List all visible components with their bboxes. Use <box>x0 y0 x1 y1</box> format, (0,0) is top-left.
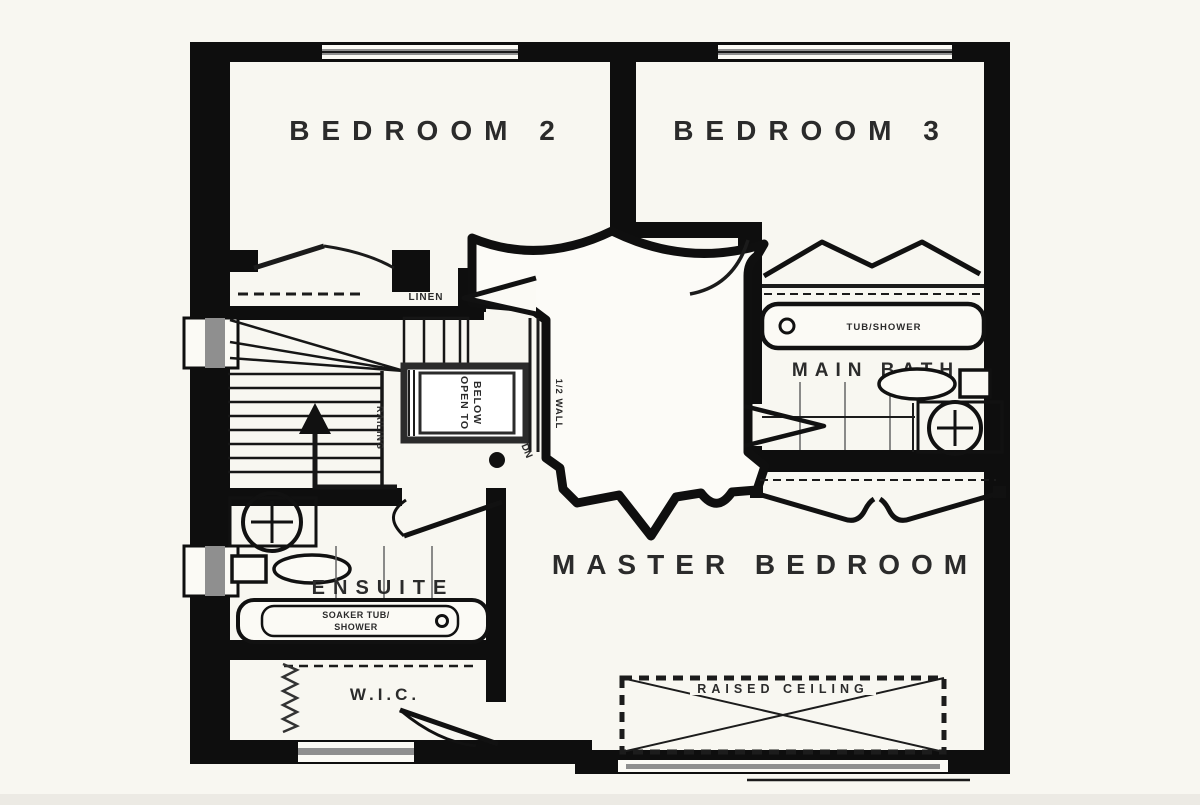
linen-label: LINEN <box>409 292 444 303</box>
open-to-below: OPEN TO BELOW <box>404 366 526 440</box>
floor-plan-drawing: OPEN TO BELOW 1/2 WALL DN LINEN TUB/SHOW… <box>0 0 1200 805</box>
soaker-tub-label-line1: SOAKER TUB/ <box>322 610 390 620</box>
footer-strip <box>0 794 1200 805</box>
bedroom2-label: BEDROOM 2 <box>289 115 567 146</box>
wall-left <box>190 42 230 762</box>
open-to-below-label-line2: BELOW <box>471 381 483 425</box>
ensuite-label: ENSUITE <box>312 577 455 599</box>
bedroom3-label: BEDROOM 3 <box>673 115 951 146</box>
door-pivot <box>750 486 763 498</box>
soaker-tub: SOAKER TUB/ SHOWER <box>238 600 488 642</box>
wall-bedroom-divider <box>610 42 636 232</box>
newel-post <box>489 452 505 468</box>
floor-plan-page: OPEN TO BELOW 1/2 WALL DN LINEN TUB/SHOW… <box>0 0 1200 805</box>
window-bottom-wic <box>298 742 414 762</box>
wall-right <box>984 42 1010 774</box>
railing-label: RAILING <box>375 406 385 450</box>
wall-bed2-door-jamb-right <box>392 250 430 292</box>
window-top-bedroom3 <box>718 45 952 59</box>
window-top-bedroom2 <box>322 45 518 59</box>
wall-hall-vertical-lower <box>486 744 506 762</box>
wic-label: W.I.C. <box>350 685 420 704</box>
window-left-lower <box>184 546 238 596</box>
wall-bed2-door-jamb-left <box>228 250 258 272</box>
open-to-below-label-line1: OPEN TO <box>458 376 470 430</box>
door-pivot <box>993 486 1006 498</box>
toilet-icon <box>879 369 990 399</box>
sink-icon <box>243 493 301 551</box>
tub-shower-label: TUB/SHOWER <box>847 322 922 333</box>
soaker-tub-label-line2: SHOWER <box>334 622 378 632</box>
wall-hall-vertical-upper <box>486 488 506 702</box>
master-bedroom-label: MASTER BEDROOM <box>552 549 978 580</box>
half-wall-label: 1/2 WALL <box>553 379 564 430</box>
raised-ceiling-label: RAISED CEILING <box>697 682 868 696</box>
